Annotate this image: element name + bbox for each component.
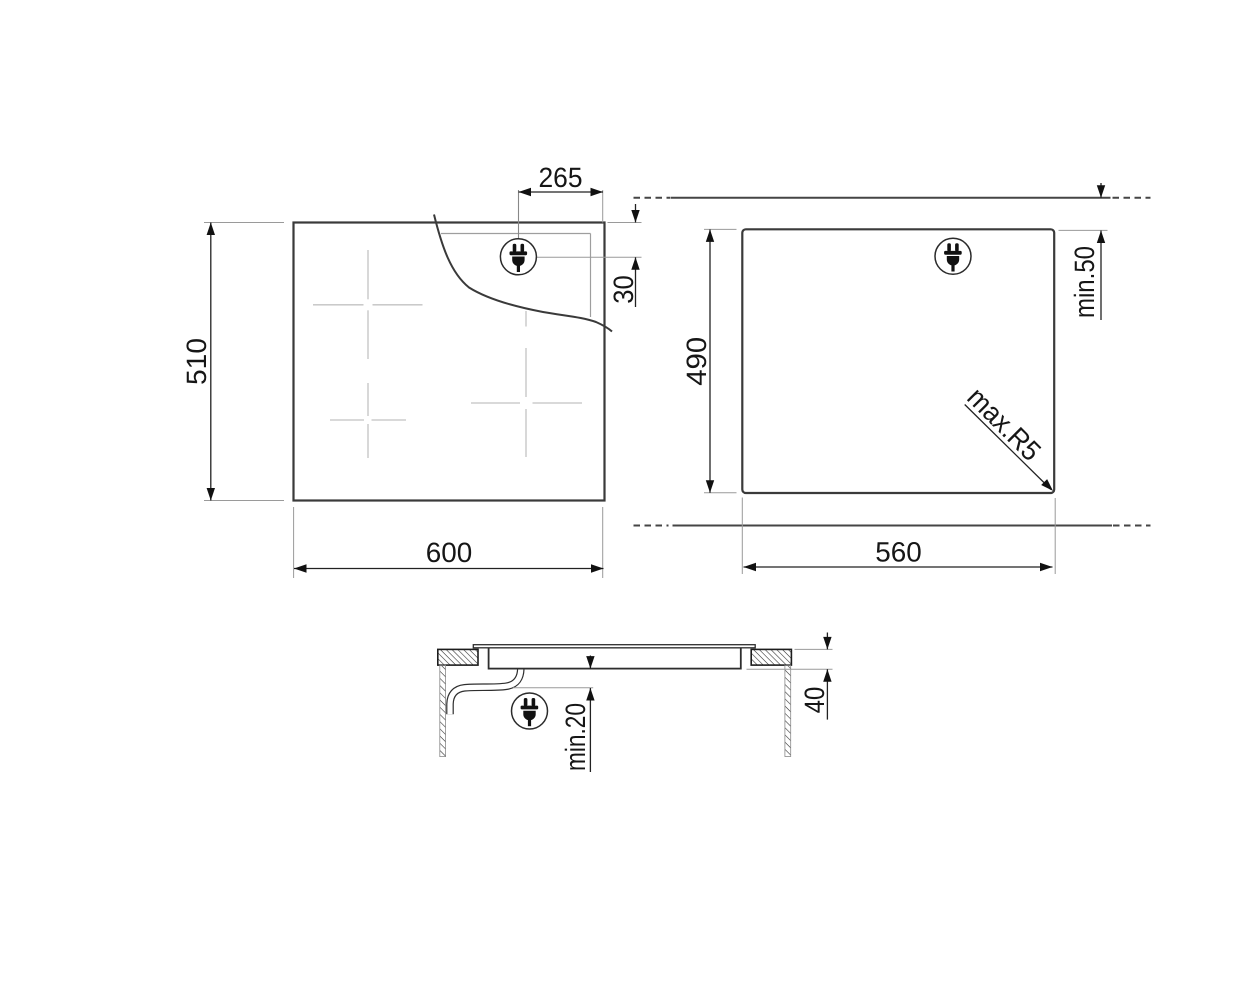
svg-text:490: 490	[681, 337, 712, 386]
svg-text:560: 560	[875, 537, 922, 568]
svg-text:510: 510	[181, 338, 212, 385]
svg-text:30: 30	[608, 275, 639, 304]
svg-text:min.50: min.50	[1069, 246, 1100, 318]
svg-text:40: 40	[799, 687, 830, 714]
svg-text:min.20: min.20	[560, 703, 591, 771]
svg-text:600: 600	[426, 537, 473, 568]
svg-text:max.R5: max.R5	[961, 381, 1047, 467]
svg-text:265: 265	[539, 162, 583, 193]
